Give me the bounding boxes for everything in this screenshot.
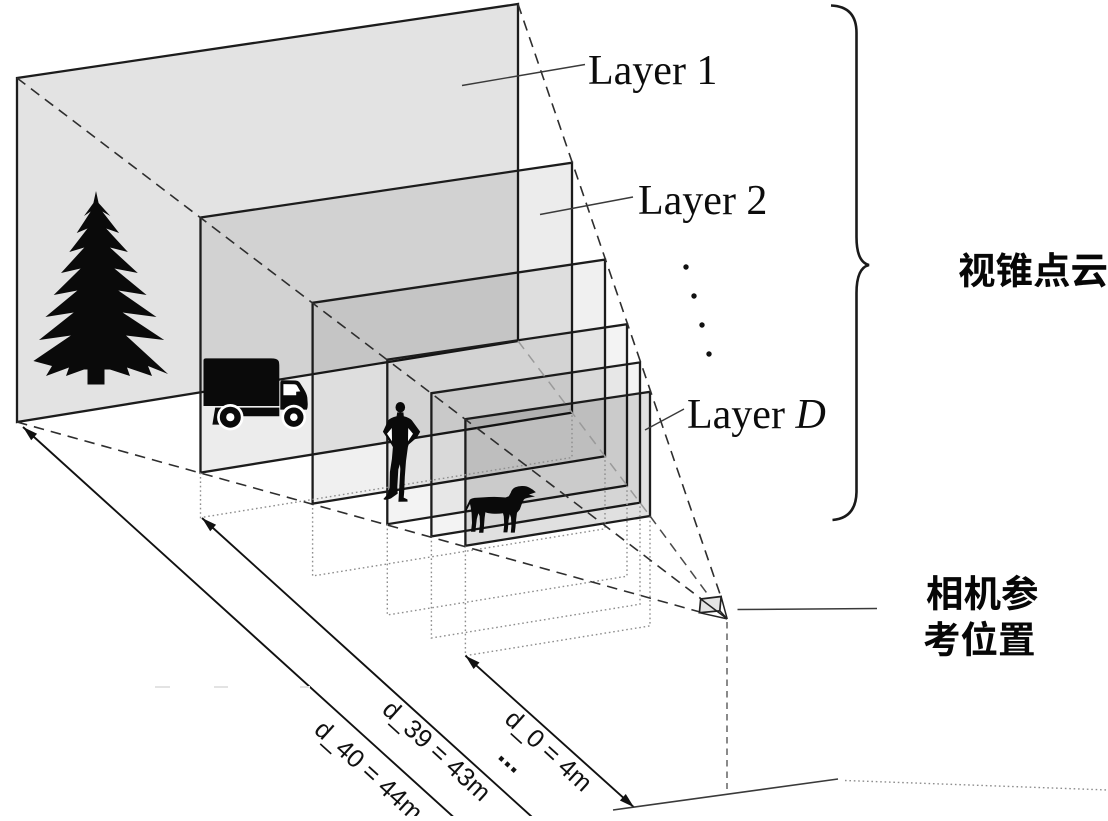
svg-text:Layer 1: Layer 1: [588, 48, 717, 94]
svg-text:Layer D: Layer D: [687, 392, 826, 438]
svg-text:Layer 2: Layer 2: [638, 178, 767, 224]
